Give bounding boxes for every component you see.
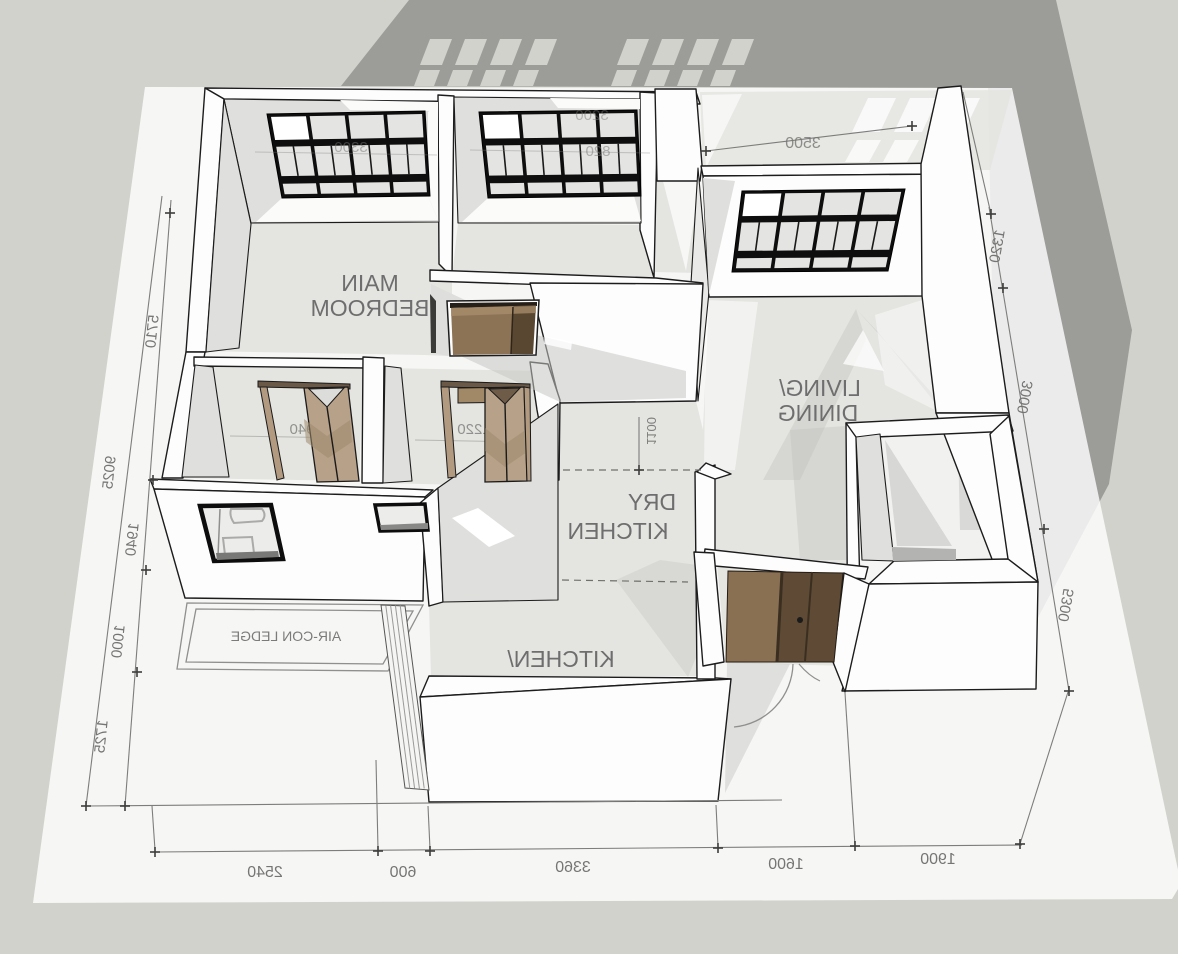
- svg-text:820: 820: [585, 143, 610, 160]
- svg-text:1900: 1900: [920, 851, 956, 868]
- svg-text:1100: 1100: [644, 417, 659, 445]
- svg-text:AIR-CON LEDGE: AIR-CON LEDGE: [231, 628, 341, 644]
- svg-text:9025: 9025: [99, 455, 119, 490]
- svg-text:2540: 2540: [247, 864, 283, 881]
- svg-text:1725: 1725: [91, 719, 111, 754]
- svg-text:1940: 1940: [122, 522, 142, 557]
- svg-text:MAIN: MAIN: [341, 270, 399, 296]
- svg-text:DRY: DRY: [628, 489, 676, 515]
- svg-text:DINING: DINING: [778, 400, 859, 426]
- svg-text:1600: 1600: [768, 856, 804, 873]
- svg-text:KITCHEN: KITCHEN: [568, 518, 669, 544]
- svg-text:600: 600: [390, 864, 417, 881]
- svg-text:3360: 3360: [555, 859, 591, 876]
- svg-text:LIVING/: LIVING/: [778, 375, 860, 401]
- svg-text:5710: 5710: [142, 314, 162, 349]
- svg-text:BEDROOM: BEDROOM: [311, 295, 430, 321]
- svg-text:3200: 3200: [575, 107, 608, 124]
- svg-text:KITCHEN/: KITCHEN/: [507, 646, 615, 672]
- svg-text:3300: 3300: [334, 139, 367, 156]
- svg-text:1000: 1000: [108, 624, 128, 659]
- svg-text:3500: 3500: [785, 135, 821, 152]
